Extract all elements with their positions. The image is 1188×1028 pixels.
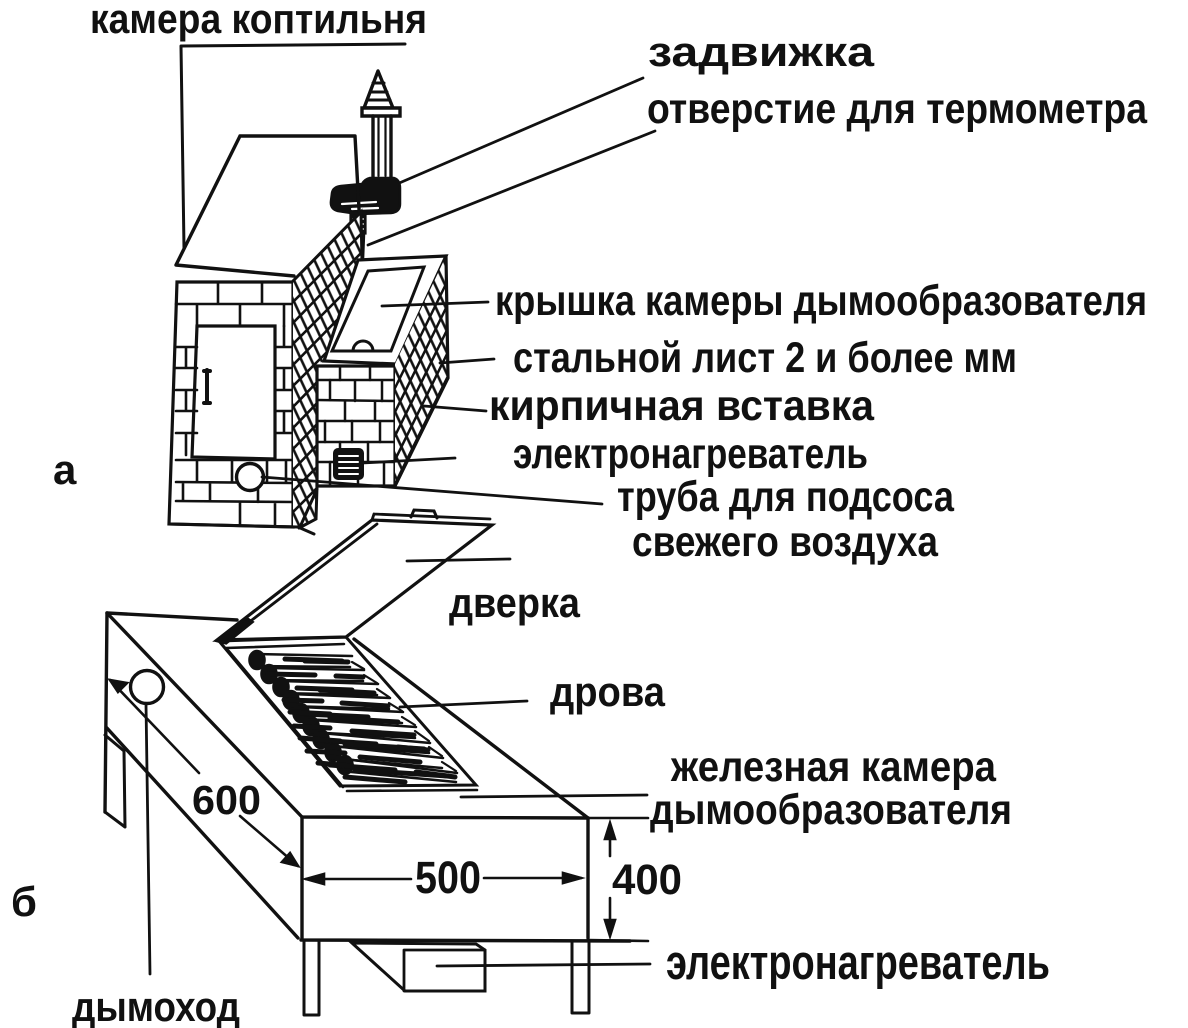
svg-text:железная камера: железная камера bbox=[670, 743, 997, 791]
svg-text:дрова: дрова bbox=[550, 668, 666, 715]
svg-text:стальной лист 2 и более мм: стальной лист 2 и более мм bbox=[513, 334, 1017, 382]
svg-text:дымоход: дымоход bbox=[72, 983, 240, 1028]
svg-text:кирпичная вставка: кирпичная вставка bbox=[489, 382, 875, 430]
svg-text:а: а bbox=[53, 446, 77, 493]
svg-text:электронагреватель: электронагреватель bbox=[513, 430, 868, 478]
svg-text:камера коптильня: камера коптильня bbox=[90, 0, 427, 42]
svg-text:электронагреватель: электронагреватель bbox=[666, 936, 1050, 990]
svg-text:400: 400 bbox=[612, 856, 682, 904]
svg-text:дверка: дверка bbox=[449, 579, 581, 626]
svg-text:труба для подсоса: труба для подсоса bbox=[617, 473, 955, 521]
svg-text:дымообразователя: дымообразователя bbox=[650, 786, 1012, 834]
svg-text:500: 500 bbox=[415, 852, 481, 903]
svg-text:задвижка: задвижка bbox=[648, 28, 875, 75]
svg-text:свежего воздуха: свежего воздуха bbox=[632, 518, 939, 566]
svg-text:600: 600 bbox=[192, 777, 261, 823]
svg-text:отверстие для термометра: отверстие для термометра bbox=[647, 85, 1148, 133]
svg-text:крышка камеры дымообразователя: крышка камеры дымообразователя bbox=[495, 277, 1147, 325]
svg-text:б: б bbox=[11, 878, 37, 925]
